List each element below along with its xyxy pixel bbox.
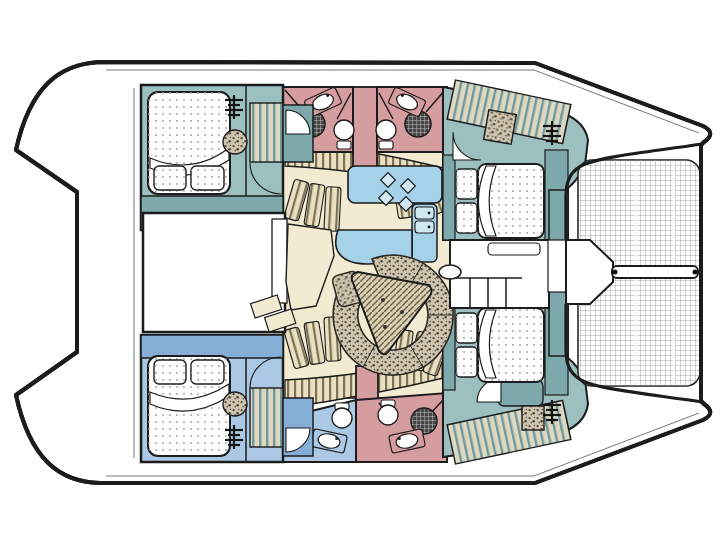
bowsprit-fitting <box>693 270 698 275</box>
toilet-icon <box>332 403 352 428</box>
table-leg <box>381 298 385 302</box>
double-bed <box>148 92 230 194</box>
bowsprit: Bowsprit beam <box>612 266 698 278</box>
corridor-starboard-aft <box>283 398 313 456</box>
dinette <box>331 255 453 375</box>
corridor-port-aft <box>283 105 313 162</box>
head-starboard-forward: Head — starboard forward <box>356 393 447 462</box>
pouf <box>223 130 247 154</box>
toilet-icon <box>378 400 398 425</box>
cabinet <box>443 155 455 240</box>
locker <box>484 110 517 144</box>
galley-counter <box>348 166 442 203</box>
table-leg <box>383 325 387 329</box>
pouf <box>223 392 247 416</box>
sliding-door <box>272 219 287 303</box>
step <box>488 243 540 255</box>
wardrobe <box>250 103 283 162</box>
toilet-icon <box>334 120 354 149</box>
wardrobe <box>250 388 283 447</box>
cabin-port-aft: Double cabin — port aft <box>141 85 283 230</box>
catamaran-floorplan: Catamaran yacht interior layout — top-vi… <box>0 0 728 546</box>
bowsprit-fitting <box>613 270 618 275</box>
table-leg <box>400 310 404 314</box>
locker <box>522 406 544 430</box>
catamaran-floorplan-page: Catamaran yacht interior layout — top-vi… <box>0 0 728 546</box>
double-bed <box>148 356 230 456</box>
companionway-column-port <box>353 87 377 178</box>
cabin-starboard-aft: Double cabin — starboard aft <box>141 335 283 462</box>
cabinet-box <box>498 380 543 406</box>
deck-hatch <box>439 265 461 279</box>
cabinet <box>141 335 283 358</box>
head-port-forward: Head — port forward <box>376 87 447 152</box>
toilet-icon <box>376 120 396 149</box>
